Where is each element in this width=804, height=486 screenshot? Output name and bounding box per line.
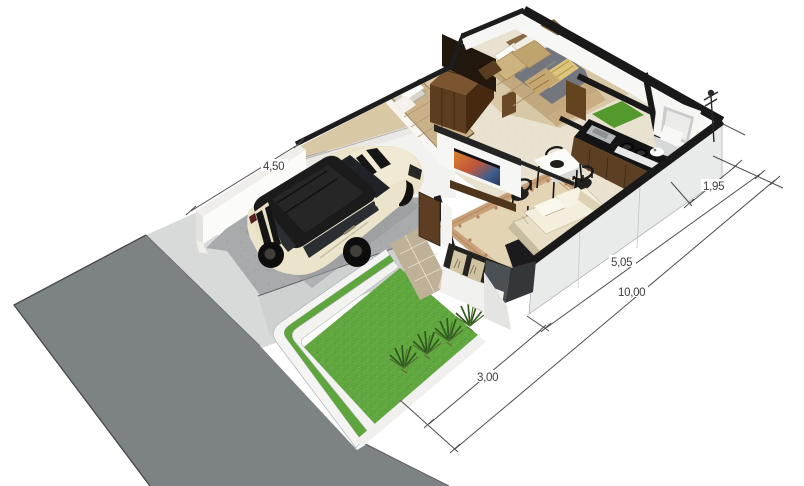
svg-text:10,00: 10,00 [618,287,645,299]
svg-text:1,95: 1,95 [703,181,724,193]
svg-text:3,00: 3,00 [477,372,498,384]
svg-text:5,05: 5,05 [611,257,632,269]
svg-text:4,50: 4,50 [263,161,284,173]
